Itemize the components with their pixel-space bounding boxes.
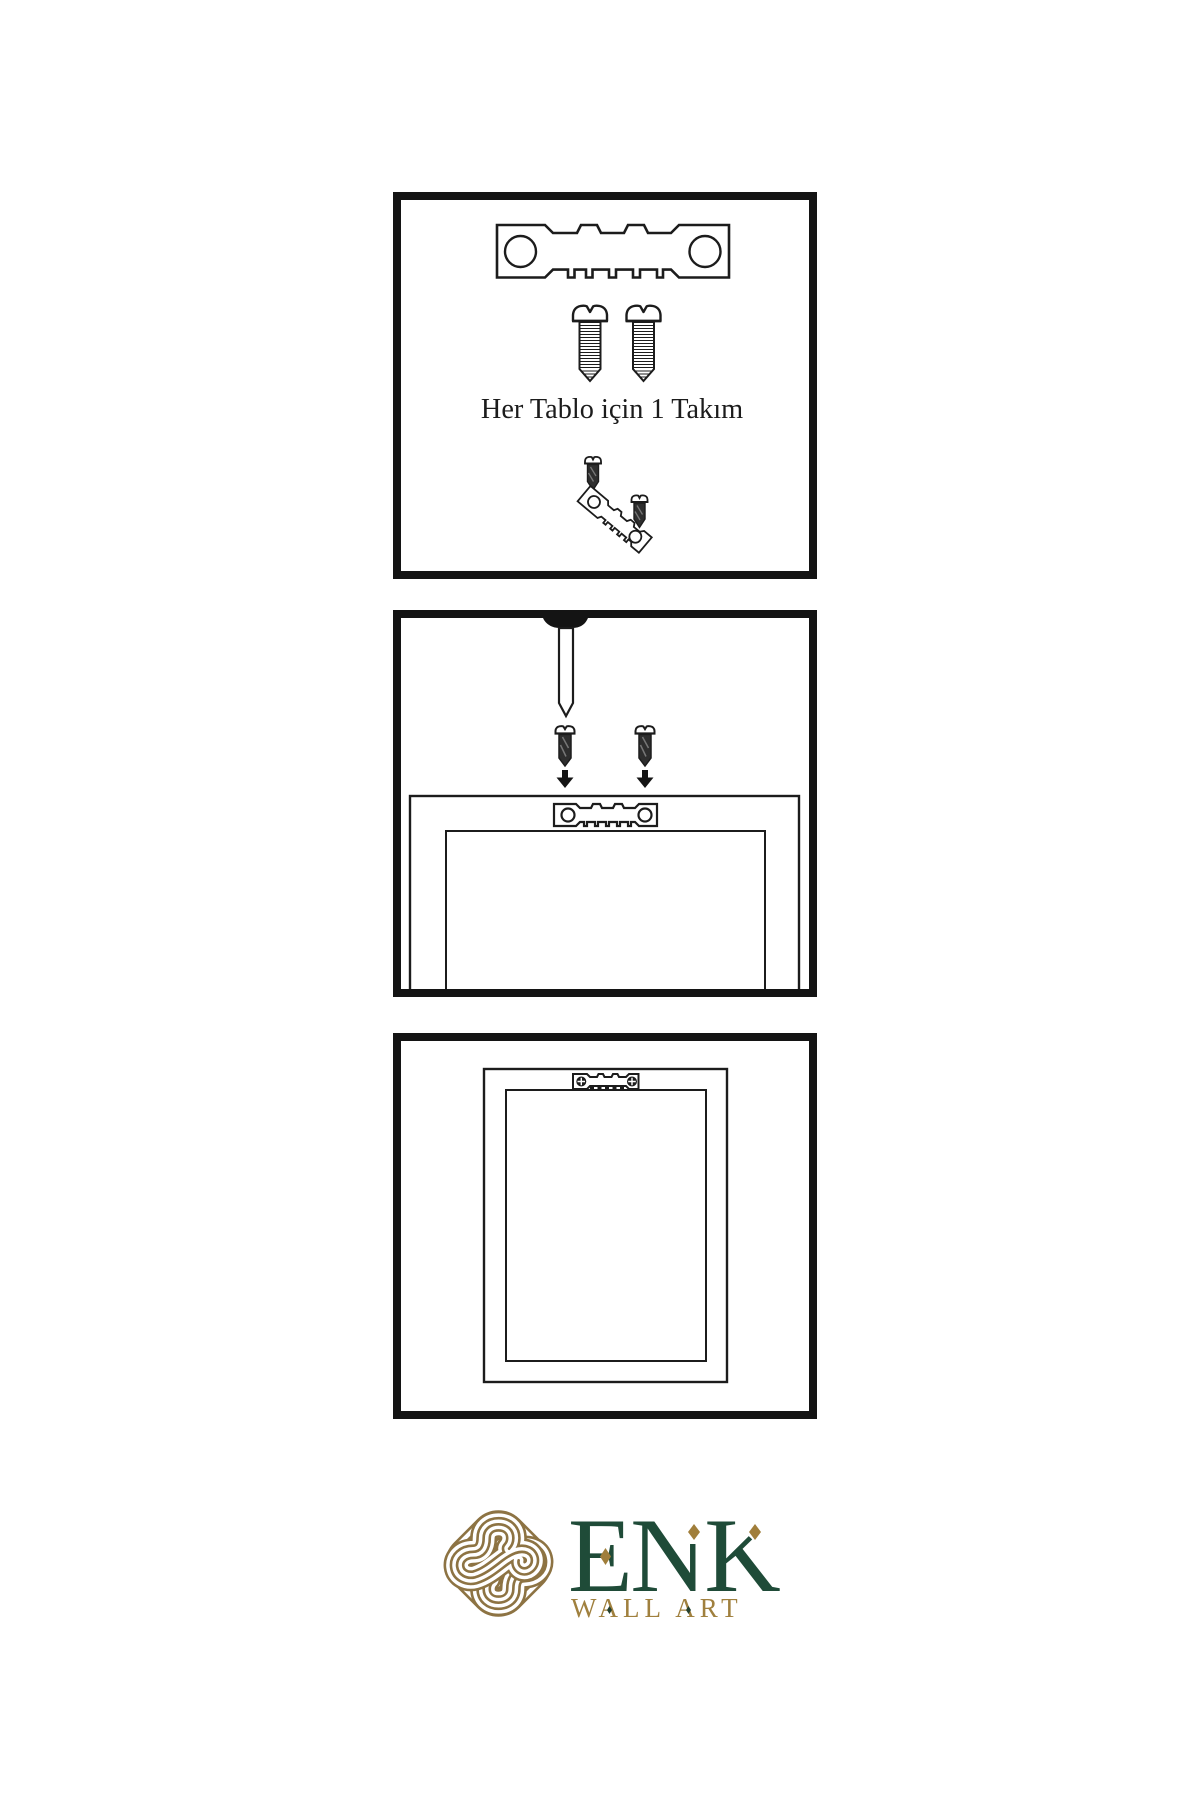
svg-text:Her Tablo için 1 Takım: Her Tablo için 1 Takım xyxy=(481,394,743,425)
